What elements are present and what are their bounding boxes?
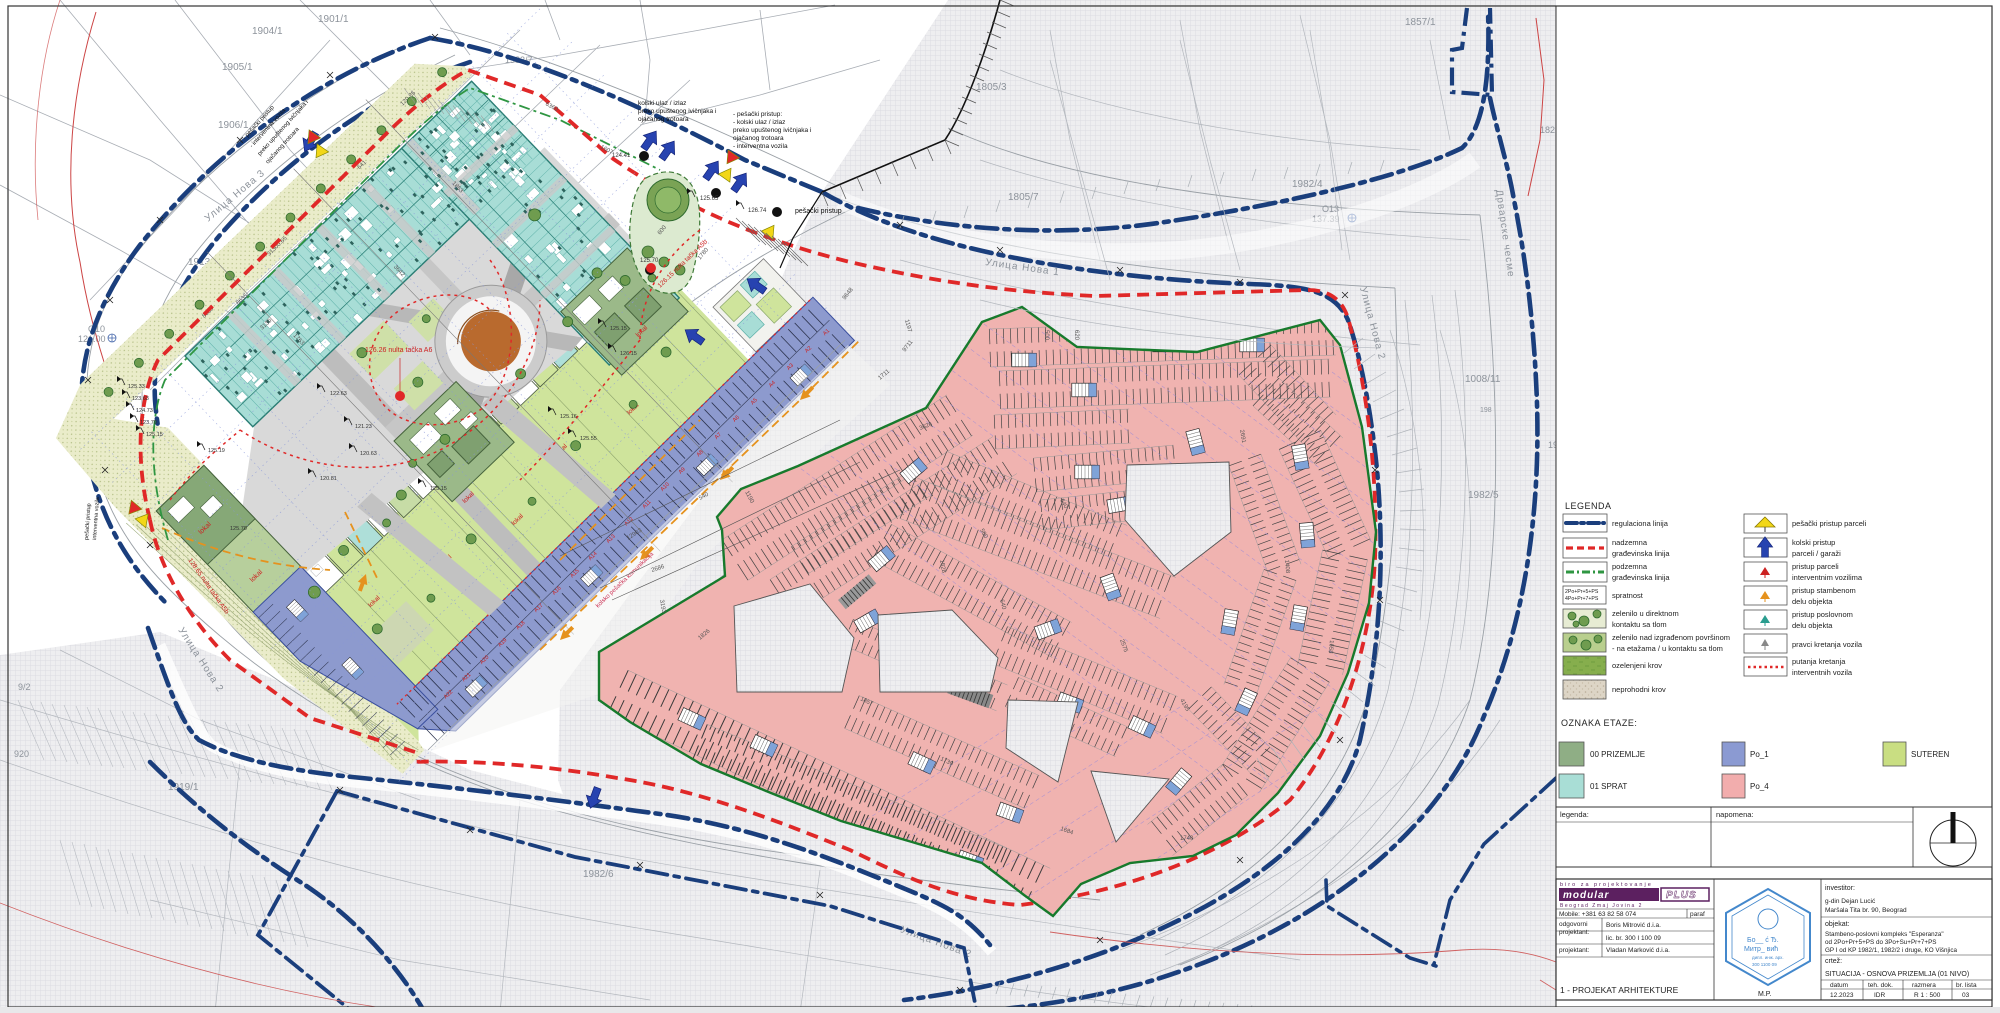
svg-text:126.74: 126.74 xyxy=(748,208,767,214)
svg-text:123.70: 123.70 xyxy=(140,420,157,426)
svg-text:122.63: 122.63 xyxy=(330,391,347,397)
svg-text:delu objekta: delu objekta xyxy=(1792,597,1833,606)
svg-text:neprohodni krov: neprohodni krov xyxy=(1612,685,1666,694)
svg-text:interventnim vozilima: interventnim vozilima xyxy=(1792,573,1863,582)
svg-text:R 1 : 500: R 1 : 500 xyxy=(1914,992,1941,999)
svg-text:Бо__ ć Ђ.: Бо__ ć Ђ. xyxy=(1747,937,1779,944)
svg-text:delu objekta: delu objekta xyxy=(1792,621,1833,630)
svg-text:4Po+Pr+7+PS: 4Po+Pr+7+PS xyxy=(1565,596,1599,602)
svg-text:parceli / garaži: parceli / garaži xyxy=(1792,549,1841,558)
svg-text:00 PRIZEMLJE: 00 PRIZEMLJE xyxy=(1590,750,1645,759)
svg-text:razmera: razmera xyxy=(1912,982,1936,989)
svg-text:03: 03 xyxy=(1962,992,1970,999)
svg-text:120.81: 120.81 xyxy=(320,476,337,482)
svg-text:- interventna vozila: - interventna vozila xyxy=(733,143,788,150)
svg-text:Po_1: Po_1 xyxy=(1750,750,1769,759)
svg-text:1982/4: 1982/4 xyxy=(1292,179,1323,190)
svg-text:2Po+Pr+5+PS: 2Po+Pr+5+PS xyxy=(1565,589,1599,595)
svg-text:paraf: paraf xyxy=(1690,911,1705,918)
svg-text:125.70: 125.70 xyxy=(230,526,247,532)
svg-text:zelenilo nad izgrađenom površi: zelenilo nad izgrađenom površinom xyxy=(1612,633,1730,642)
svg-text:125.15: 125.15 xyxy=(610,326,627,332)
svg-text:pešački pristup parceli: pešački pristup parceli xyxy=(1792,519,1867,528)
svg-text:123.63: 123.63 xyxy=(132,396,149,402)
svg-text:preko upuštenog ivičnjaka i: preko upuštenog ivičnjaka i xyxy=(638,108,716,115)
svg-text:- kolski ulaz / izlaz: - kolski ulaz / izlaz xyxy=(733,119,785,126)
svg-text:1 - PROJEKAT ARHITEKTURE: 1 - PROJEKAT ARHITEKTURE xyxy=(1560,985,1679,995)
svg-text:PLUS: PLUS xyxy=(1666,890,1697,901)
svg-text:M.P.: M.P. xyxy=(1758,991,1772,998)
svg-text:620: 620 xyxy=(1073,330,1079,341)
svg-text:Po_4: Po_4 xyxy=(1750,782,1769,791)
svg-text:198: 198 xyxy=(1480,407,1492,414)
svg-text:SITUACIJA - OSNOVA PRIZEMLJA (: SITUACIJA - OSNOVA PRIZEMLJA (01 NIVO) xyxy=(1825,971,1969,978)
svg-text:GP I od KP 1982/1, 1982/2 i dr: GP I od KP 1982/1, 1982/2 i druge, KO Vi… xyxy=(1825,947,1957,954)
svg-text:spratnost: spratnost xyxy=(1612,591,1644,600)
svg-text:zelenilo u direktnom: zelenilo u direktnom xyxy=(1612,609,1679,618)
svg-text:OZNAKA ETAZE:: OZNAKA ETAZE: xyxy=(1561,718,1637,728)
svg-text:1905/1: 1905/1 xyxy=(222,62,253,73)
svg-text:ozelenjeni krov: ozelenjeni krov xyxy=(1612,661,1662,670)
svg-text:1658: 1658 xyxy=(1327,640,1334,654)
svg-text:nadzemna: nadzemna xyxy=(1612,538,1648,547)
svg-text:01 SPRAT: 01 SPRAT xyxy=(1590,782,1627,791)
svg-text:biro za projektovanje: biro za projektovanje xyxy=(1560,882,1653,888)
svg-text:objekat:: objekat: xyxy=(1825,921,1850,928)
svg-text:12.2023: 12.2023 xyxy=(1830,992,1854,999)
svg-text:1906/1: 1906/1 xyxy=(218,120,249,131)
svg-text:125.55: 125.55 xyxy=(580,436,597,442)
svg-text:projektant:: projektant: xyxy=(1559,947,1590,954)
svg-text:1805/3: 1805/3 xyxy=(976,82,1007,93)
svg-text:125.16: 125.16 xyxy=(560,414,577,420)
svg-text:125.15: 125.15 xyxy=(430,486,447,492)
svg-text:124.73: 124.73 xyxy=(136,408,153,414)
svg-text:1904/1: 1904/1 xyxy=(252,26,283,37)
svg-text:pešački pristup: pešački pristup xyxy=(795,208,842,215)
svg-text:g-din Dejan Lucić: g-din Dejan Lucić xyxy=(1825,898,1876,905)
svg-text:odgovorni: odgovorni xyxy=(1559,921,1588,928)
svg-text:125.19: 125.19 xyxy=(208,448,225,454)
svg-text:kontaktu sa tlom: kontaktu sa tlom xyxy=(1612,620,1667,629)
svg-text:pristup parceli: pristup parceli xyxy=(1792,562,1839,571)
svg-text:920: 920 xyxy=(14,749,29,759)
svg-text:putanja kretanja: putanja kretanja xyxy=(1792,657,1846,666)
svg-text:regulaciona linija: regulaciona linija xyxy=(1612,519,1669,528)
svg-text:interventnih vozila: interventnih vozila xyxy=(1792,668,1853,677)
svg-text:datum: datum xyxy=(1830,982,1848,989)
svg-text:1008/11: 1008/11 xyxy=(1465,374,1501,385)
svg-text:crtež:: crtež: xyxy=(1825,958,1842,965)
svg-text:ojačanog trotoara: ojačanog trotoara xyxy=(733,135,784,142)
svg-text:legenda:: legenda: xyxy=(1560,810,1589,819)
svg-text:Stambeno-poslovni kompleks "Es: Stambeno-poslovni kompleks "Esperanza" xyxy=(1825,931,1944,938)
svg-text:дипл. инж. арх.: дипл. инж. арх. xyxy=(1752,955,1784,960)
svg-text:napomena:: napomena: xyxy=(1716,810,1754,819)
svg-text:br. lista: br. lista xyxy=(1956,982,1977,989)
svg-text:126.15: 126.15 xyxy=(620,351,637,357)
svg-text:1740: 1740 xyxy=(1180,836,1194,842)
svg-text:Boris Mitrović d.i.a.: Boris Mitrović d.i.a. xyxy=(1606,922,1661,929)
svg-text:125.33: 125.33 xyxy=(128,384,145,390)
svg-text:kolski pristup: kolski pristup xyxy=(1792,538,1835,547)
svg-text:1982/6: 1982/6 xyxy=(583,869,614,880)
svg-text:preko upuštenog ivičnjaka i: preko upuštenog ivičnjaka i xyxy=(733,127,811,134)
svg-text:pristup stambenom: pristup stambenom xyxy=(1792,586,1856,595)
svg-text:9/2: 9/2 xyxy=(18,682,31,692)
svg-text:građevinska linija: građevinska linija xyxy=(1612,573,1670,582)
svg-text:300 1100 09: 300 1100 09 xyxy=(1752,962,1777,967)
svg-text:teh. dok.: teh. dok. xyxy=(1868,982,1893,989)
svg-text:1805/7: 1805/7 xyxy=(1008,192,1039,203)
svg-text:1857/1: 1857/1 xyxy=(1405,17,1436,28)
svg-text:500: 500 xyxy=(1043,330,1049,341)
svg-text:1408: 1408 xyxy=(1283,560,1290,574)
svg-text:Maršala Tita br. 90, Beograd: Maršala Tita br. 90, Beograd xyxy=(1825,907,1907,914)
svg-text:ojačanog trotoara: ojačanog trotoara xyxy=(638,116,689,123)
svg-text:125.65: 125.65 xyxy=(700,196,719,202)
svg-text:Митр_ вић: Митр_ вић xyxy=(1744,945,1778,953)
svg-text:Mobile: +381 63 82 58 074: Mobile: +381 63 82 58 074 xyxy=(1559,911,1637,918)
svg-text:od 2Po+Pr+5+PS do 3Po+Su+Pr+7+: od 2Po+Pr+5+PS do 3Po+Su+Pr+7+PS xyxy=(1825,939,1937,946)
svg-text:SUTEREN: SUTEREN xyxy=(1911,750,1949,759)
svg-text:lic. br. 300 I 100 09: lic. br. 300 I 100 09 xyxy=(1606,935,1661,942)
svg-text:120.63: 120.63 xyxy=(360,451,377,457)
svg-text:modular: modular xyxy=(1563,890,1610,901)
svg-text:investitor:: investitor: xyxy=(1825,885,1855,892)
svg-text:podzemna: podzemna xyxy=(1612,562,1648,571)
svg-text:Vladan Marković d.i.a.: Vladan Marković d.i.a. xyxy=(1606,947,1670,954)
svg-text:pravci kretanja vozila: pravci kretanja vozila xyxy=(1792,640,1863,649)
svg-text:124.41: 124.41 xyxy=(612,153,631,159)
svg-text:kolski ulaz / izlaz: kolski ulaz / izlaz xyxy=(638,100,686,107)
svg-text:Beograd Zmaj Jovina 2: Beograd Zmaj Jovina 2 xyxy=(1560,903,1643,909)
svg-text:126.26 nulta tačka A6: 126.26 nulta tačka A6 xyxy=(365,347,432,354)
svg-text:- pešački pristup:: - pešački pristup: xyxy=(733,111,782,118)
svg-text:pristup poslovnom: pristup poslovnom xyxy=(1792,610,1853,619)
svg-text:121.23: 121.23 xyxy=(355,424,372,430)
svg-text:125.15: 125.15 xyxy=(146,432,163,438)
svg-text:IDR: IDR xyxy=(1874,992,1886,999)
svg-text:125.70: 125.70 xyxy=(640,258,659,264)
svg-text:LEGENDA: LEGENDA xyxy=(1565,501,1612,511)
svg-text:1901/1: 1901/1 xyxy=(318,14,349,25)
svg-text:građevinska linija: građevinska linija xyxy=(1612,549,1670,558)
svg-text:- na etažama / u kontaktu sa t: - na etažama / u kontaktu sa tlom xyxy=(1612,644,1723,653)
svg-text:1982/5: 1982/5 xyxy=(1468,490,1499,501)
svg-text:projektant:: projektant: xyxy=(1559,929,1590,936)
